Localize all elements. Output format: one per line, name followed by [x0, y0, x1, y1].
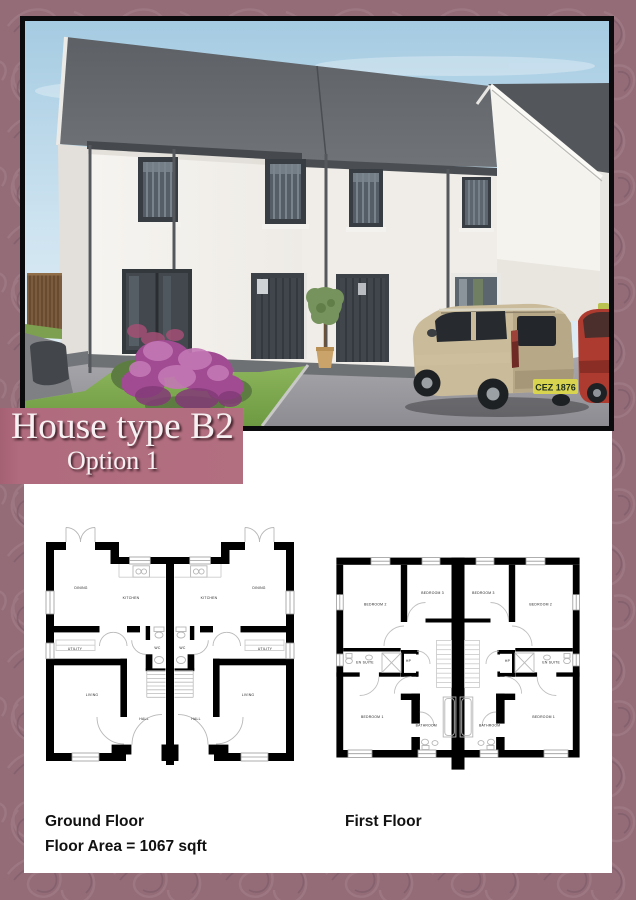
- svg-text:BEDROOM 1: BEDROOM 1: [532, 715, 555, 719]
- svg-text:BEDROOM 1: BEDROOM 1: [361, 715, 384, 719]
- svg-text:CEZ 1876: CEZ 1876: [535, 383, 576, 393]
- svg-text:EN SUITE: EN SUITE: [356, 661, 374, 665]
- svg-text:HP: HP: [406, 659, 412, 663]
- svg-text:HP: HP: [505, 659, 511, 663]
- svg-text:HALL: HALL: [191, 717, 200, 721]
- svg-text:BEDROOM 3: BEDROOM 3: [421, 591, 444, 595]
- svg-text:BEDROOM 2: BEDROOM 2: [529, 603, 552, 607]
- svg-text:KITCHEN: KITCHEN: [201, 596, 218, 600]
- svg-text:UTILITY: UTILITY: [68, 647, 83, 651]
- svg-text:WC: WC: [154, 646, 160, 650]
- svg-text:UTILITY: UTILITY: [258, 647, 273, 651]
- svg-text:BATHROOM: BATHROOM: [479, 724, 500, 728]
- svg-text:DINING: DINING: [252, 586, 265, 590]
- svg-text:LIVING: LIVING: [242, 693, 255, 697]
- svg-text:BATHROOM: BATHROOM: [416, 724, 437, 728]
- svg-text:DINING: DINING: [74, 586, 87, 590]
- svg-text:HALL: HALL: [139, 717, 148, 721]
- svg-text:EN SUITE: EN SUITE: [542, 661, 560, 665]
- svg-text:BEDROOM 2: BEDROOM 2: [364, 603, 387, 607]
- svg-text:BEDROOM 3: BEDROOM 3: [472, 591, 495, 595]
- svg-text:WC: WC: [179, 646, 185, 650]
- svg-text:KITCHEN: KITCHEN: [123, 596, 140, 600]
- svg-text:LIVING: LIVING: [86, 693, 99, 697]
